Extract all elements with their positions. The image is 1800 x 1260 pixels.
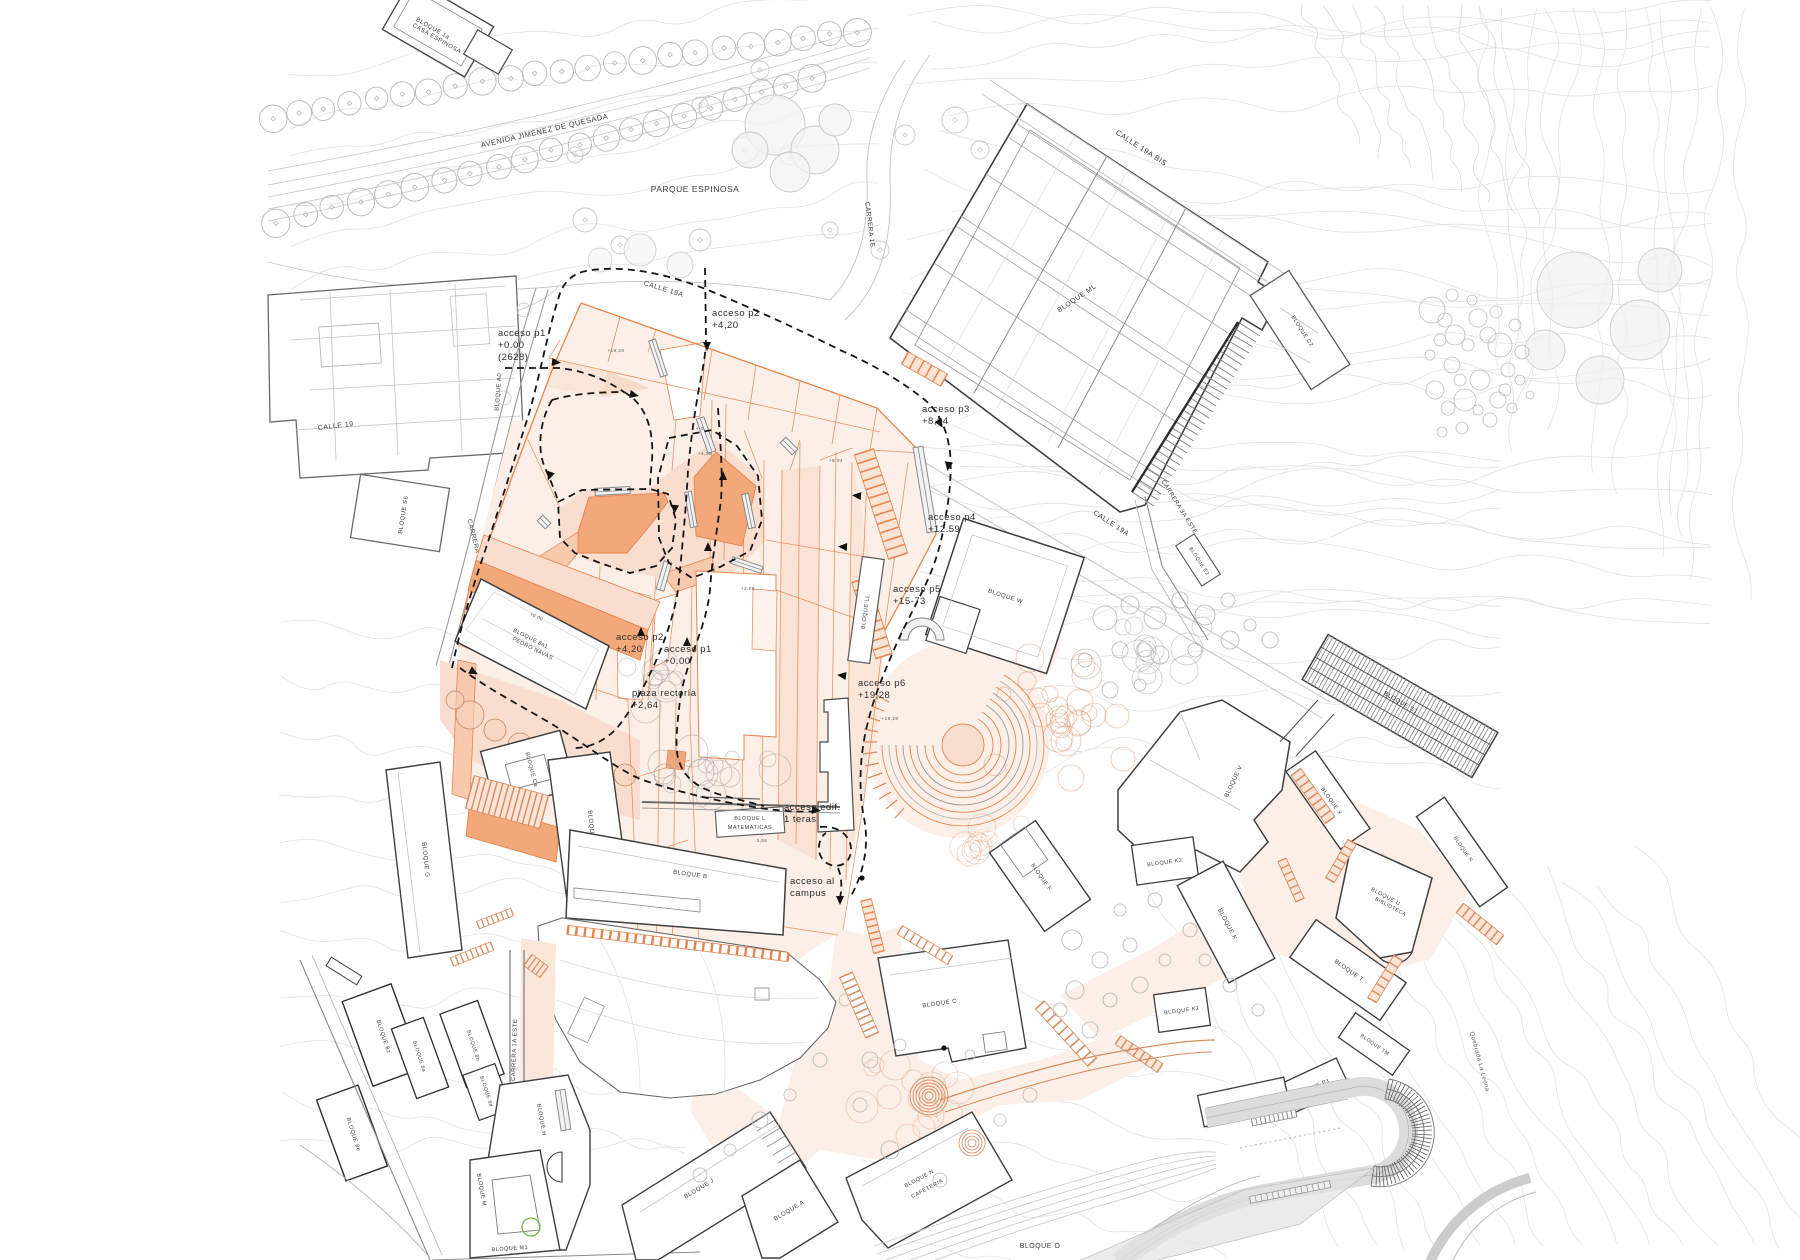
svg-text:MATEMATICAS: MATEMATICAS	[728, 825, 772, 831]
svg-text:+4,20: +4,20	[712, 320, 739, 331]
svg-text:+15-73: +15-73	[893, 596, 926, 607]
svg-text:acceso p1: acceso p1	[664, 644, 712, 655]
svg-text:+4,20: +4,20	[616, 644, 643, 655]
svg-text:+8,04: +8,04	[829, 458, 843, 463]
svg-text:acceso p1: acceso p1	[498, 328, 546, 339]
svg-text:+19,28: +19,28	[858, 690, 890, 701]
svg-text:acceso al: acceso al	[790, 876, 835, 887]
svg-text:+2,64: +2,64	[632, 700, 659, 711]
svg-text:+-0: +-0	[696, 426, 704, 431]
svg-text:acceso p6: acceso p6	[858, 678, 906, 689]
svg-text:1 teras: 1 teras	[784, 814, 817, 825]
svg-text:BLOQUE O: BLOQUE O	[1020, 1243, 1061, 1250]
svg-text:acceso p4: acceso p4	[928, 512, 976, 523]
svg-text:+0.00: +0.00	[664, 656, 691, 667]
svg-text:acceso p2: acceso p2	[712, 308, 760, 319]
svg-text:acceso p5: acceso p5	[893, 584, 941, 595]
svg-text:+19,28: +19,28	[608, 348, 625, 353]
svg-text:(2628): (2628)	[498, 352, 528, 363]
svg-text:3,66: 3,66	[757, 838, 768, 843]
svg-text:+8,04: +8,04	[922, 416, 949, 427]
svg-text:+2,08: +2,08	[741, 586, 755, 591]
svg-text:+12.59: +12.59	[928, 524, 960, 535]
svg-text:plaza rectoría: plaza rectoría	[632, 688, 697, 699]
svg-text:+0.00: +0.00	[498, 340, 525, 351]
svg-text:+4,20: +4,20	[698, 451, 712, 456]
svg-text:PARQUE ESPINOSA: PARQUE ESPINOSA	[651, 184, 740, 194]
svg-text:+19,28: +19,28	[882, 716, 899, 721]
svg-text:campus: campus	[790, 888, 826, 899]
svg-text:acceso p3: acceso p3	[922, 404, 970, 415]
svg-text:acceso p2: acceso p2	[616, 632, 664, 643]
svg-text:acceso edif.: acceso edif.	[784, 802, 841, 813]
svg-text:BLOQUE L: BLOQUE L	[734, 816, 766, 822]
